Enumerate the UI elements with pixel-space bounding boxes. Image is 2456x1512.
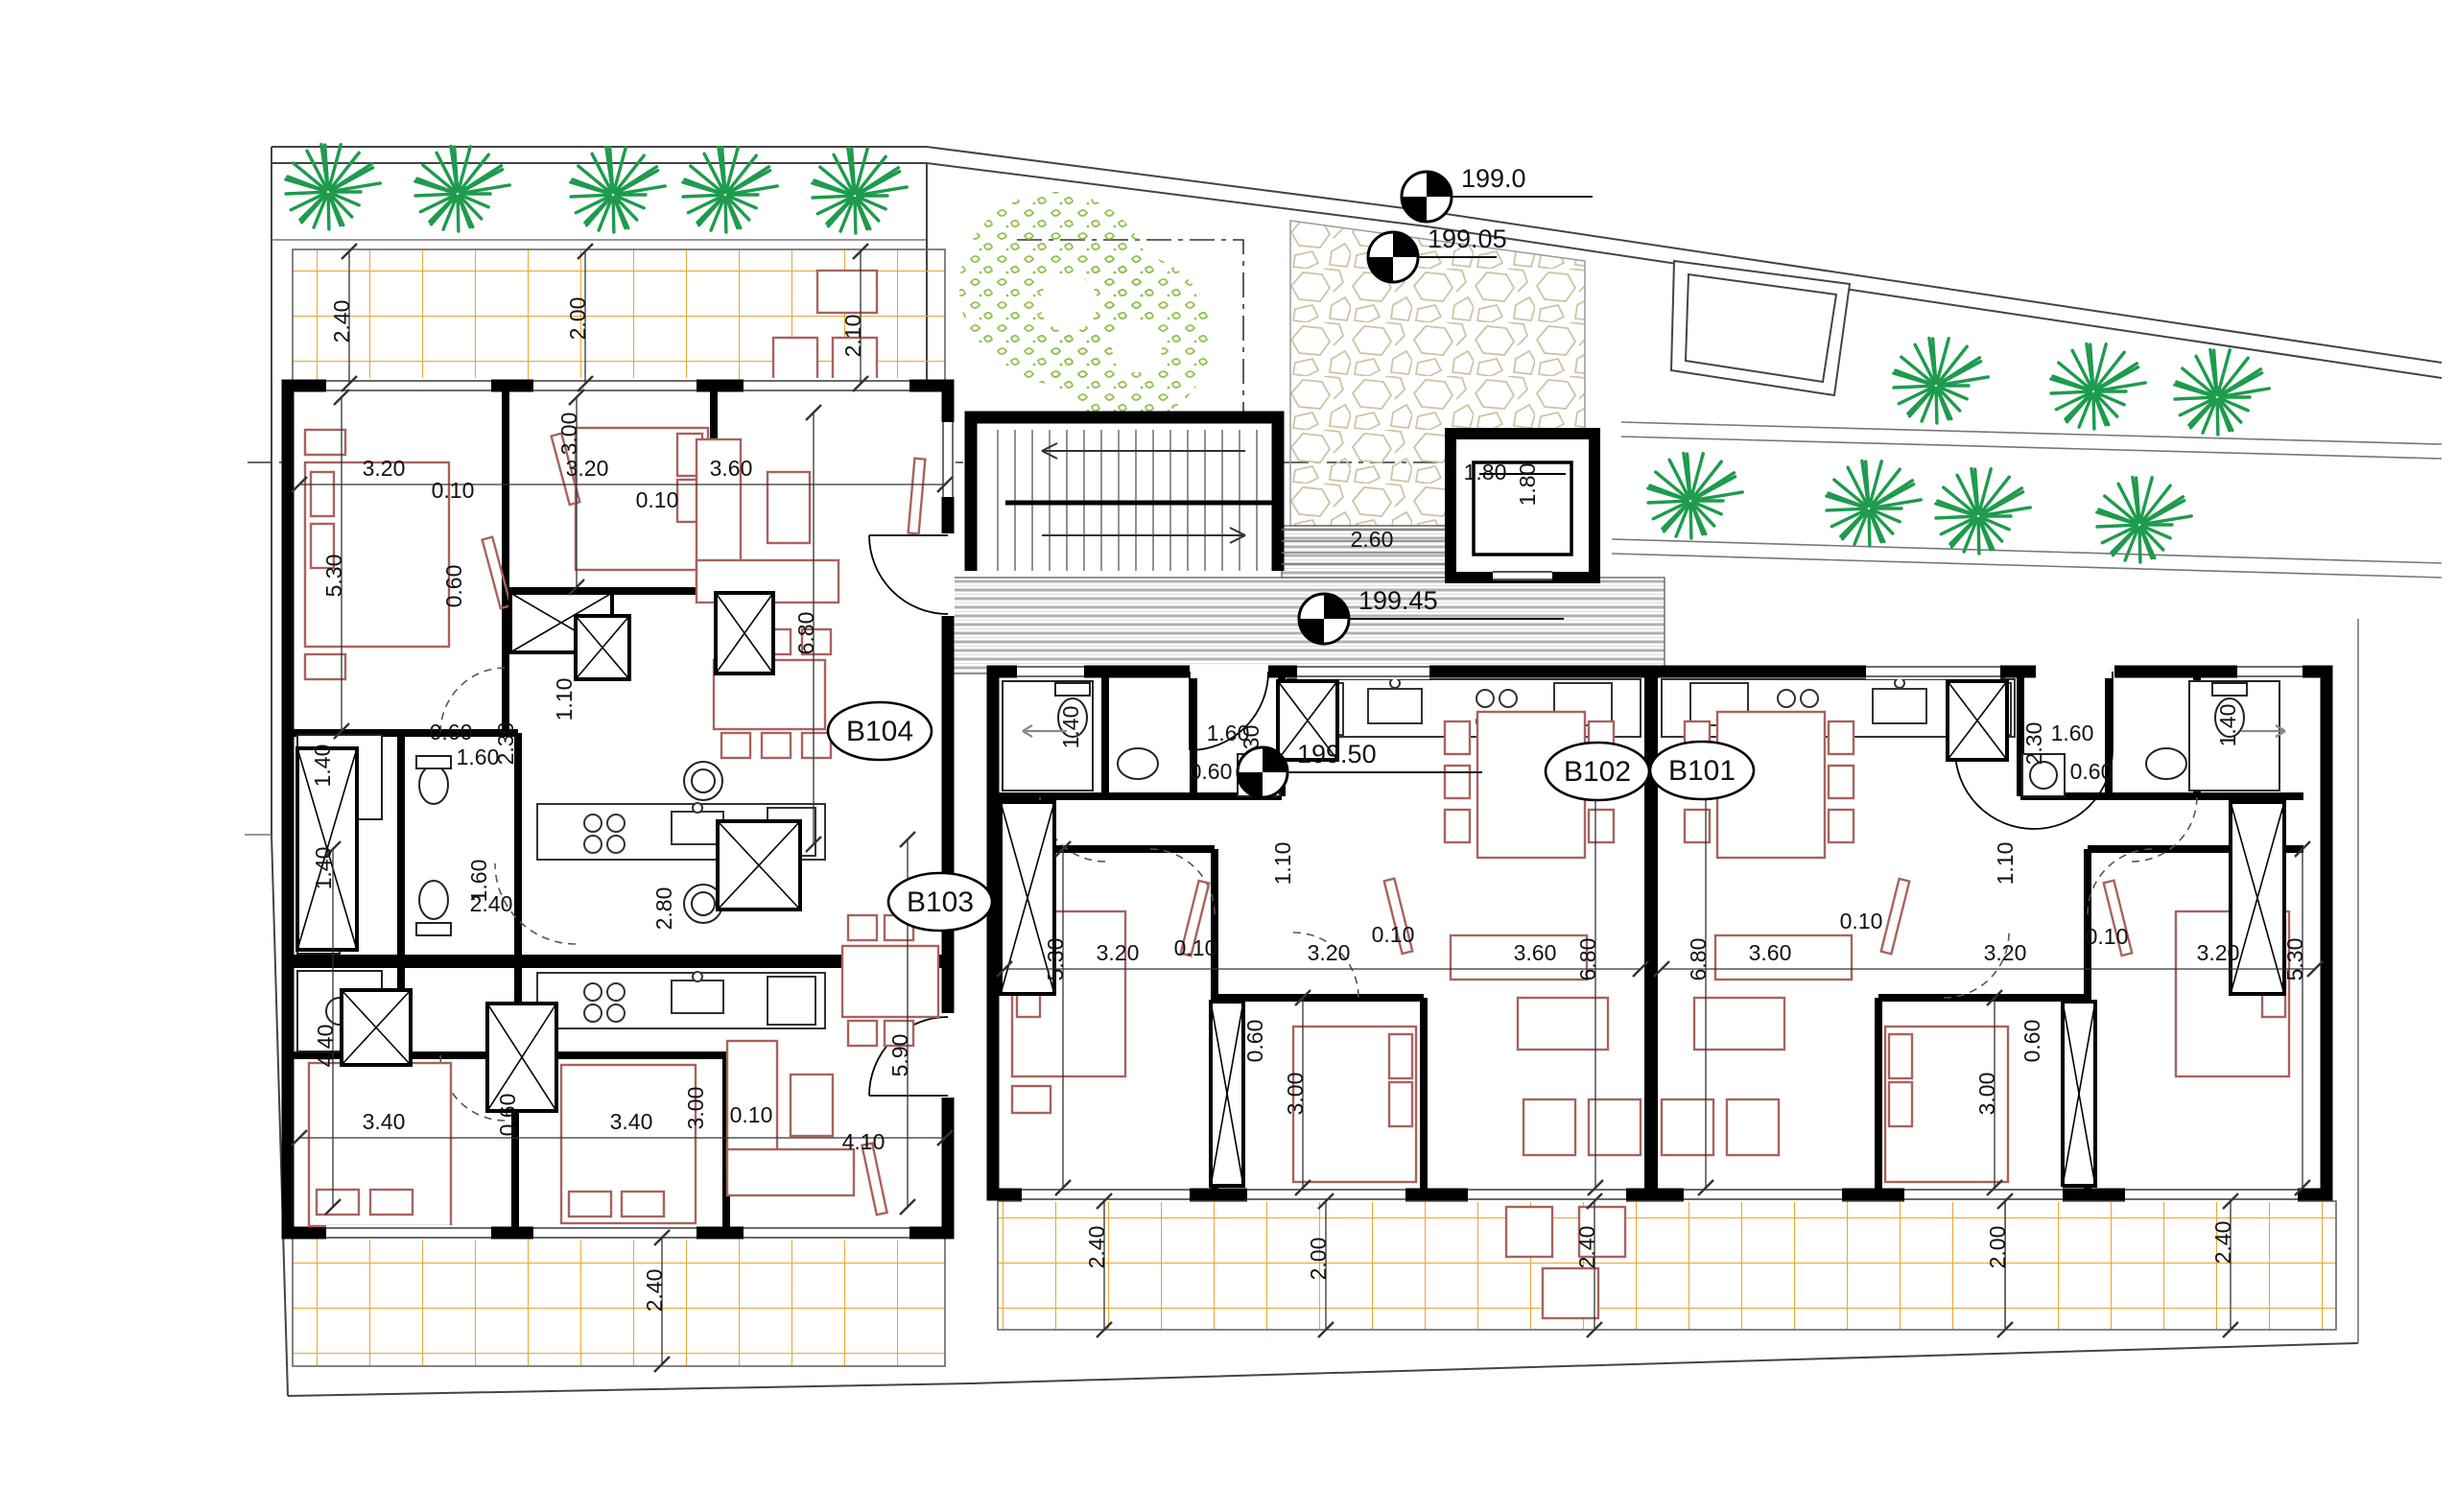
staircase xyxy=(971,417,1278,571)
dimension-label: 2.00 xyxy=(1985,1226,2010,1269)
wardrobe xyxy=(576,616,629,679)
terrace-bottom-left xyxy=(293,1236,945,1366)
dimension-label: 2.80 xyxy=(651,887,676,931)
dimension-label: 5.30 xyxy=(2282,938,2307,981)
dimension-label: 3.00 xyxy=(1283,1073,1308,1116)
dimension-label: 2.40 xyxy=(1574,1226,1599,1269)
dimension-label: 3.60 xyxy=(710,456,753,481)
dimension-label: 2.30 xyxy=(493,722,518,766)
window xyxy=(533,378,697,393)
window xyxy=(533,1225,697,1240)
tree-icon xyxy=(683,148,777,232)
dimension-label: 2.30 xyxy=(2021,722,2046,766)
dimension-label: 3.60 xyxy=(1514,940,1557,965)
unit-label-B102: B102 xyxy=(1546,743,1649,800)
unit-id: B101 xyxy=(1668,755,1736,787)
tree-icon xyxy=(2175,350,2269,435)
dimension-label: 1.60 xyxy=(2051,721,2094,745)
window xyxy=(326,378,491,393)
dimension-label: 2.40 xyxy=(2210,1221,2235,1264)
dimension-label: 4.40 xyxy=(313,1025,338,1068)
dimension-label: 3.20 xyxy=(1097,940,1140,965)
dimension-label: 6.80 xyxy=(1575,938,1600,981)
dimension-label: 0.10 xyxy=(1840,909,1883,933)
wardrobe xyxy=(2063,1002,2095,1186)
dimension-label: 3.40 xyxy=(363,1109,406,1134)
dimension-label: 0.60 xyxy=(441,565,466,608)
wardrobe xyxy=(716,593,773,673)
dimension-label: 0.10 xyxy=(636,487,679,512)
dimension-label: 3.60 xyxy=(1749,940,1792,965)
dimension-label: 5.30 xyxy=(1043,938,1068,981)
dimension-label: 0.10 xyxy=(730,1102,773,1127)
dimension-label: 0.10 xyxy=(432,478,475,503)
unit-id: B103 xyxy=(907,886,974,918)
dimension-label: 3.00 xyxy=(1974,1073,1999,1116)
dimension-label: 2.40 xyxy=(642,1269,667,1312)
dimension-label: 2.40 xyxy=(1084,1226,1109,1269)
dimension-label: 1.10 xyxy=(1270,842,1295,886)
elevation-value: 199.50 xyxy=(1297,740,1377,768)
dimension-label: 3.00 xyxy=(683,1087,708,1130)
dimension-label: 0.10 xyxy=(1174,935,1217,960)
elevation-marker: 199.0 xyxy=(1402,164,1593,222)
window xyxy=(1866,664,2000,679)
tree-icon xyxy=(415,147,509,231)
dimension-label: 1.80 xyxy=(1515,463,1540,507)
floor-plan-canvas: 2.402.002.103.200.103.200.103.605.303.00… xyxy=(0,0,2456,1512)
wardrobe xyxy=(1948,681,2007,760)
unit-label-B104: B104 xyxy=(828,702,932,760)
tree-icon xyxy=(1894,339,1988,423)
unit-id: B102 xyxy=(1564,756,1631,788)
dimension-label: 1.10 xyxy=(552,678,577,721)
dimension-label: 1.40 xyxy=(2215,704,2240,747)
wardrobe xyxy=(2231,802,2284,994)
dimension-label: 2.60 xyxy=(1351,527,1394,552)
unit-label-B103: B103 xyxy=(888,873,992,931)
terrace-bottom-right xyxy=(998,1201,2336,1330)
wardrobe xyxy=(342,990,411,1065)
dimension-label: 1.10 xyxy=(1993,842,2018,886)
window xyxy=(326,1225,491,1240)
dimension-label: 1.80 xyxy=(1464,460,1507,484)
floor-plan-svg: 2.402.002.103.200.103.200.103.605.303.00… xyxy=(0,0,2456,1512)
elevation-value: 199.0 xyxy=(1461,164,1526,193)
dimension-label: 1.40 xyxy=(311,847,336,890)
window xyxy=(744,1225,909,1240)
dimension-label: 3.20 xyxy=(2197,940,2240,965)
unit-label-B101: B101 xyxy=(1650,742,1754,799)
dimension-label: 0.60 xyxy=(1242,1020,1267,1063)
dimension-label: 0.10 xyxy=(2086,924,2129,949)
dimension-label: 2.10 xyxy=(840,315,865,358)
dimension-label: 0.60 xyxy=(2070,759,2114,784)
dimension-label: 0.60 xyxy=(1190,759,1233,784)
tree-icon xyxy=(1827,461,1921,546)
dimension-label: 3.40 xyxy=(610,1109,653,1134)
dimension-label: 2.40 xyxy=(470,891,513,916)
dimension-label: 2.00 xyxy=(565,297,590,341)
window xyxy=(1904,1187,2063,1202)
kitchen-B103 xyxy=(537,972,825,1028)
elevation-value: 199.45 xyxy=(1358,586,1438,615)
dimension-label: 5.30 xyxy=(321,555,346,598)
wardrobe xyxy=(1211,1002,1243,1186)
tree-icon xyxy=(2097,478,2191,562)
dimension-label: 5.90 xyxy=(887,1034,912,1077)
wardrobe xyxy=(718,821,800,910)
tree-icon xyxy=(1936,469,2030,554)
dimension-label: 3.20 xyxy=(566,456,609,481)
elevation-value: 199.05 xyxy=(1428,224,1507,253)
dimension-label: 0.60 xyxy=(495,1094,520,1137)
dimension-label: 2.40 xyxy=(329,300,354,343)
dimension-label: 1.40 xyxy=(1058,706,1083,749)
window xyxy=(744,378,909,393)
dimension-label: 0.10 xyxy=(1372,922,1415,947)
dimension-label: 2.00 xyxy=(1306,1238,1331,1281)
dimension-label: 3.20 xyxy=(1308,940,1351,965)
window xyxy=(2237,664,2302,679)
tree-icon xyxy=(813,149,907,233)
planter-box xyxy=(1671,261,1850,395)
dimension-label: 3.20 xyxy=(363,456,406,481)
dimension-label: 3.00 xyxy=(556,413,581,456)
window xyxy=(2125,1187,2298,1202)
dimension-label: 4.10 xyxy=(842,1129,886,1154)
dimension-label: 0.60 xyxy=(430,720,473,744)
tree-icon xyxy=(1648,454,1742,538)
dimension-label: 6.80 xyxy=(793,612,818,655)
shrub xyxy=(959,192,1212,422)
tree-icon xyxy=(286,145,380,229)
dimension-label: 1.40 xyxy=(310,744,335,788)
window xyxy=(1017,664,1084,679)
dimension-label: 6.80 xyxy=(1686,938,1711,981)
tree-icon xyxy=(2051,344,2145,429)
tree-icon xyxy=(571,148,665,232)
window xyxy=(1684,1187,1842,1202)
window xyxy=(1297,664,1429,679)
dimension-label: 3.20 xyxy=(1984,940,2027,965)
unit-id: B104 xyxy=(846,716,913,747)
dimension-label: 0.60 xyxy=(2019,1020,2044,1063)
